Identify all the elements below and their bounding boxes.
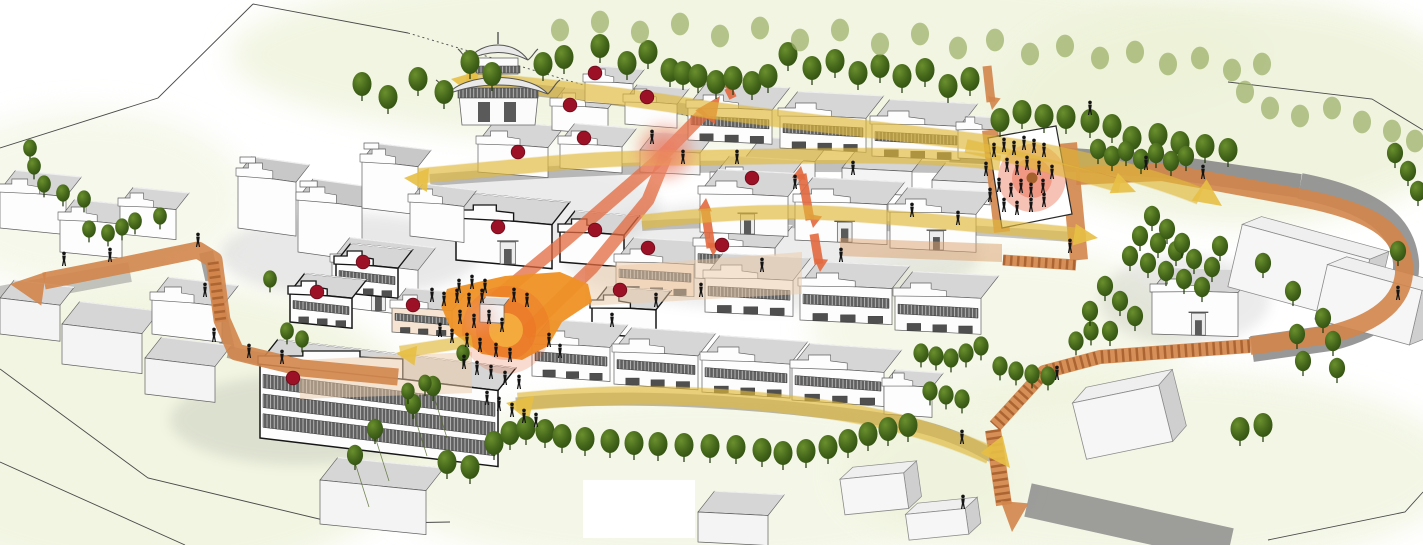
tree-canopy <box>911 23 929 46</box>
tree-canopy <box>1008 361 1023 380</box>
tree-canopy <box>753 438 772 462</box>
shop-opening <box>418 329 428 334</box>
tree-canopy <box>1040 366 1055 385</box>
tree-canopy <box>701 434 720 458</box>
tree-canopy <box>1353 111 1371 134</box>
tree <box>1159 53 1177 76</box>
white-patch <box>583 480 695 538</box>
tree <box>831 19 849 42</box>
tree-canopy <box>401 383 414 400</box>
shop-opening <box>400 327 410 332</box>
red-dot-marker <box>286 371 300 385</box>
tree-canopy <box>483 62 502 86</box>
tree-canopy <box>1400 161 1416 181</box>
tree-canopy <box>461 50 480 74</box>
tree-canopy <box>1291 105 1309 128</box>
tree-canopy <box>899 413 918 437</box>
tree <box>1329 358 1345 383</box>
shop-opening <box>959 326 973 333</box>
tree <box>1261 97 1279 120</box>
tree-canopy <box>367 419 383 439</box>
tree-canopy <box>1140 253 1156 273</box>
shop-opening <box>566 372 578 379</box>
shop-opening <box>860 398 875 405</box>
tree-canopy <box>992 356 1007 375</box>
tree-canopy <box>1295 351 1311 371</box>
tree-canopy <box>1236 81 1254 104</box>
shop-opening <box>750 136 763 143</box>
tree <box>1325 331 1341 356</box>
tree <box>1323 97 1341 120</box>
tree-canopy <box>534 52 553 76</box>
tree <box>1253 53 1271 76</box>
tree-canopy <box>1082 301 1098 321</box>
tree-canopy <box>871 54 890 78</box>
plain-building <box>320 458 444 535</box>
tree-canopy <box>1178 146 1194 166</box>
tree-canopy <box>37 175 51 192</box>
shop-opening <box>336 321 346 327</box>
tree-canopy <box>689 64 708 88</box>
tree <box>1223 59 1241 82</box>
person-figure <box>517 375 521 389</box>
shop-opening <box>868 316 883 323</box>
tree-canopy <box>555 45 574 69</box>
shop-opening <box>543 370 555 377</box>
tree-canopy <box>826 49 845 73</box>
tree-canopy <box>263 270 277 287</box>
shop-opening <box>317 319 327 325</box>
tree-canopy <box>791 29 809 52</box>
shop-opening <box>744 307 758 314</box>
tree-canopy <box>1148 143 1164 163</box>
shop-opening <box>299 317 309 323</box>
tree-canopy <box>1090 139 1106 159</box>
tree <box>671 13 689 36</box>
tree-canopy <box>280 322 294 339</box>
tree-canopy <box>1325 331 1341 351</box>
tree-canopy <box>27 157 41 174</box>
tree-canopy <box>517 416 536 440</box>
shop-opening <box>725 135 738 142</box>
tree-canopy <box>1261 97 1279 120</box>
tree-canopy <box>631 21 649 44</box>
tree-canopy <box>1132 226 1148 246</box>
tree-canopy <box>1159 219 1175 239</box>
tree-canopy <box>1127 306 1143 326</box>
tree-canopy <box>625 431 644 455</box>
tree-canopy <box>831 19 849 42</box>
tree <box>986 29 1004 52</box>
activity-glow <box>465 303 495 333</box>
tree <box>1056 35 1074 58</box>
tree <box>1353 111 1371 134</box>
tree-canopy <box>724 66 743 90</box>
tree-canopy <box>601 429 620 453</box>
tree-canopy <box>1102 321 1118 341</box>
tree-canopy <box>1329 358 1345 378</box>
tree-canopy <box>295 330 309 347</box>
tree-canopy <box>591 34 610 58</box>
tree <box>1291 105 1309 128</box>
tree-canopy <box>1186 249 1202 269</box>
tree-canopy <box>153 207 167 224</box>
tree-canopy <box>1315 308 1331 328</box>
red-dot-marker <box>641 241 655 255</box>
red-dot-marker <box>745 171 759 185</box>
tree-canopy <box>1104 146 1120 166</box>
tree <box>1132 226 1148 251</box>
tree-canopy <box>893 64 912 88</box>
tree <box>751 17 769 40</box>
tree-canopy <box>871 33 889 56</box>
tree-canopy <box>913 343 928 362</box>
tree-canopy <box>961 67 980 91</box>
tree-canopy <box>56 184 70 201</box>
shop-opening <box>590 373 602 380</box>
tree-canopy <box>115 218 129 235</box>
tree <box>711 25 729 48</box>
shop-opening <box>382 291 392 297</box>
tree-canopy <box>1158 261 1174 281</box>
red-dot-marker <box>588 66 602 80</box>
tree-canopy <box>591 11 609 34</box>
tree-canopy <box>751 17 769 40</box>
tree-canopy <box>1097 276 1113 296</box>
tree-canopy <box>1144 206 1160 226</box>
tree-canopy <box>438 450 457 474</box>
tree-canopy <box>1194 277 1210 297</box>
tree <box>1091 47 1109 70</box>
tree-canopy <box>1163 151 1179 171</box>
tree-canopy <box>1174 233 1190 253</box>
white-patch-layer <box>583 480 695 538</box>
tree <box>551 19 569 42</box>
tree-canopy <box>553 424 572 448</box>
tree-canopy <box>839 429 858 453</box>
tree-canopy <box>675 433 694 457</box>
tree-canopy <box>1255 253 1271 273</box>
tree-canopy <box>551 19 569 42</box>
tree-canopy <box>1254 413 1273 437</box>
tree <box>1021 43 1039 66</box>
tree <box>1410 181 1423 206</box>
tree-canopy <box>797 439 816 463</box>
tree-canopy <box>849 61 868 85</box>
tree-canopy <box>949 37 967 60</box>
tree-canopy <box>916 58 935 82</box>
tree <box>1144 206 1160 231</box>
tree-canopy <box>986 29 1004 52</box>
tree-canopy <box>649 432 668 456</box>
plaza-center-dot <box>1027 173 1038 184</box>
tree <box>1236 81 1254 104</box>
shop-opening <box>626 378 639 385</box>
tree-canopy <box>938 385 953 404</box>
tree-canopy <box>1212 236 1228 256</box>
tree-canopy <box>759 64 778 88</box>
tree-canopy <box>435 80 454 104</box>
shop-opening <box>840 315 855 322</box>
tree-canopy <box>461 455 480 479</box>
tree-canopy <box>819 435 838 459</box>
tree-canopy <box>1285 281 1301 301</box>
diagram-stage <box>0 0 1423 545</box>
tree-canopy <box>954 389 969 408</box>
tree <box>791 29 809 52</box>
shop-opening <box>770 308 784 315</box>
red-dot-marker <box>577 131 591 145</box>
red-dot-marker <box>715 238 729 252</box>
tree-canopy <box>939 74 958 98</box>
tree-canopy <box>1081 109 1100 133</box>
activity-glow <box>650 137 680 167</box>
tree-canopy <box>618 51 637 75</box>
tree-canopy <box>576 427 595 451</box>
tree-canopy <box>859 422 878 446</box>
tree-canopy <box>639 40 658 64</box>
tree-canopy <box>1159 53 1177 76</box>
tree-canopy <box>973 336 988 355</box>
shop-opening <box>700 134 713 141</box>
tree <box>1191 47 1209 70</box>
red-dot-marker <box>491 220 505 234</box>
tree-canopy <box>1057 105 1076 129</box>
tree <box>591 11 609 34</box>
village-circulation-diagram <box>0 0 1423 545</box>
tree-canopy <box>347 445 363 465</box>
tree-canopy <box>879 417 898 441</box>
shop-opening <box>907 323 921 330</box>
tree-canopy <box>1323 97 1341 120</box>
tree-canopy <box>1024 364 1039 383</box>
tree-canopy <box>928 346 943 365</box>
red-dot-marker <box>406 298 420 312</box>
tree-canopy <box>1253 53 1271 76</box>
tree-canopy <box>1289 324 1305 344</box>
tree <box>631 21 649 44</box>
tree-canopy <box>501 421 520 445</box>
tree-canopy <box>353 72 372 96</box>
tree <box>949 37 967 60</box>
tree-canopy <box>803 56 822 80</box>
tree-canopy <box>1383 120 1401 143</box>
tree-canopy <box>418 375 431 392</box>
tree-canopy <box>1126 41 1144 64</box>
tree-canopy <box>82 220 96 237</box>
tree-canopy <box>1231 417 1250 441</box>
tree-canopy <box>1122 246 1138 266</box>
shop-opening <box>813 313 828 320</box>
red-dot-marker <box>613 283 627 297</box>
tree-canopy <box>922 381 937 400</box>
shop-opening <box>717 305 731 312</box>
tree-canopy <box>1112 291 1128 311</box>
red-dot-marker <box>511 145 525 159</box>
red-dot-marker <box>640 90 654 104</box>
tree-canopy <box>77 190 91 207</box>
shop-opening <box>651 380 664 387</box>
tree-canopy <box>707 70 726 94</box>
tree-canopy <box>128 212 142 229</box>
tree-canopy <box>1013 100 1032 124</box>
tree-canopy <box>991 108 1010 132</box>
red-dot-marker <box>310 285 324 299</box>
tree-canopy <box>1223 59 1241 82</box>
tree <box>871 33 889 56</box>
tree-canopy <box>1204 257 1220 277</box>
tree-canopy <box>943 348 958 367</box>
tree-canopy <box>1219 138 1238 162</box>
red-dot-marker <box>563 98 577 112</box>
tree <box>1295 351 1311 376</box>
red-dot-marker <box>588 223 602 237</box>
shop-opening <box>933 325 947 332</box>
shop-opening <box>363 289 373 295</box>
tree-canopy <box>379 85 398 109</box>
tree-canopy <box>101 224 115 241</box>
tree-canopy <box>727 435 746 459</box>
tree-canopy <box>1191 47 1209 70</box>
tree <box>1126 41 1144 64</box>
tree-canopy <box>1021 43 1039 66</box>
tree <box>911 23 929 46</box>
tree-canopy <box>1196 134 1215 158</box>
tree-canopy <box>1387 143 1403 163</box>
tree-canopy <box>671 13 689 36</box>
tree-canopy <box>1068 331 1083 350</box>
tree-canopy <box>1091 47 1109 70</box>
tree-canopy <box>958 343 973 362</box>
tree-canopy <box>1103 114 1122 138</box>
tree-canopy <box>711 25 729 48</box>
tree-canopy <box>1176 269 1192 289</box>
red-dot-marker <box>356 255 370 269</box>
tree-canopy <box>1056 35 1074 58</box>
tree-canopy <box>536 419 555 443</box>
tree-canopy <box>1035 104 1054 128</box>
tree-canopy <box>1390 241 1406 261</box>
tree-canopy <box>1083 321 1098 340</box>
tree-canopy <box>1118 141 1134 161</box>
shop-opening <box>792 142 806 149</box>
tree <box>1383 120 1401 143</box>
tree-canopy <box>774 441 793 465</box>
tree-canopy <box>409 67 428 91</box>
tree-canopy <box>23 139 37 156</box>
